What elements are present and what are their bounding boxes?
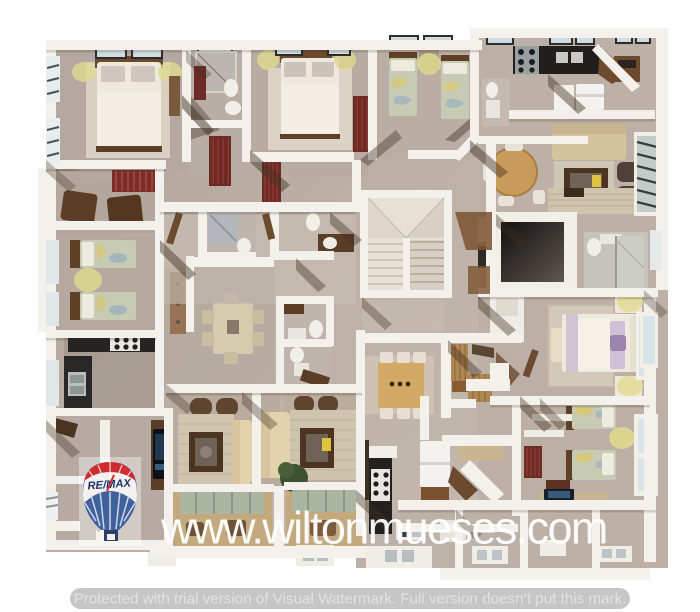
- svg-text:www.wiltonmueses.com: www.wiltonmueses.com: [160, 503, 607, 554]
- svg-text:Protected with trial version o: Protected with trial version of Visual W…: [74, 591, 627, 608]
